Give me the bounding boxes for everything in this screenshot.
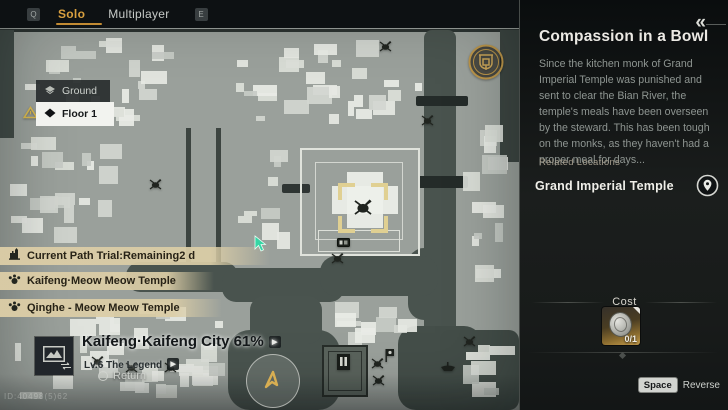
map-building	[129, 60, 140, 77]
back-circle-icon	[98, 371, 108, 381]
sign-icon[interactable]	[337, 238, 350, 247]
quest-detail-panel: « Compassion in a Bowl Since the kitchen…	[519, 0, 728, 410]
player-arrow-icon	[261, 368, 285, 392]
map-building	[64, 205, 74, 223]
map-building	[82, 153, 91, 166]
tower-icon	[8, 247, 21, 265]
map-building	[76, 51, 96, 59]
map-pin-button[interactable]	[696, 174, 719, 197]
gate-icon[interactable]	[336, 353, 351, 371]
spider-icon[interactable]	[462, 335, 477, 348]
quest-title: Compassion in a Bowl	[539, 28, 708, 46]
map-building	[10, 184, 27, 196]
return-button[interactable]: Return	[98, 370, 146, 382]
player-position-marker	[246, 354, 300, 408]
key-hint-q: Q	[27, 8, 40, 21]
spider-icon[interactable]	[330, 252, 345, 265]
map-building	[352, 68, 367, 79]
world-map[interactable]: Q Solo Multiplayer E Ground Floor 1 Curr…	[0, 0, 519, 410]
map-building	[376, 317, 396, 332]
map-building	[270, 150, 288, 162]
paw-icon	[8, 299, 21, 317]
related-locations-label: Related Locations	[539, 157, 620, 168]
map-building	[209, 363, 225, 376]
map-building	[237, 60, 248, 67]
tracked-quest-qinghe-temple[interactable]: Qinghe - Meow Meow Temple	[0, 299, 222, 317]
map-building	[361, 322, 376, 335]
map-building	[261, 208, 280, 219]
map-building	[55, 193, 75, 205]
map-building	[238, 216, 252, 223]
map-water-shape	[186, 128, 191, 266]
item-notch-icon	[633, 307, 640, 314]
space-key-hint[interactable]: Space	[639, 378, 677, 392]
map-building	[31, 156, 38, 166]
banner-icon[interactable]	[384, 348, 396, 362]
map-building	[277, 232, 290, 249]
spider-icon[interactable]	[371, 374, 386, 387]
map-building	[484, 388, 499, 395]
map-building	[156, 385, 177, 398]
selected-location-icon	[352, 198, 374, 222]
region-title[interactable]: Kaifeng·Kaifeng City 61%▶	[82, 333, 281, 350]
map-building	[332, 60, 341, 67]
map-building	[478, 345, 490, 357]
temple-plaza-outline	[318, 230, 400, 252]
map-building	[463, 172, 480, 191]
map-building	[398, 319, 417, 332]
map-building	[284, 48, 299, 58]
floor-button-label: Floor 1	[62, 108, 97, 120]
panel-footer: Space Reverse	[639, 378, 720, 392]
map-selection-marker[interactable]	[338, 183, 388, 233]
tab-multiplayer[interactable]: Multiplayer	[108, 7, 169, 21]
map-building	[475, 265, 494, 282]
map-building	[79, 198, 90, 205]
map-building	[98, 200, 112, 217]
map-building	[314, 44, 337, 55]
map-building	[42, 152, 63, 168]
active-tab-underline	[56, 23, 102, 25]
map-building	[356, 109, 372, 119]
map-building	[329, 86, 340, 98]
map-building	[61, 46, 76, 59]
tracked-quest-path-trial[interactable]: Current Path Trial:Remaining2 d	[0, 247, 270, 265]
tracked-quest-kaifeng-temple[interactable]: Kaifeng·Meow Meow Temple	[0, 272, 214, 290]
map-building	[329, 114, 339, 124]
spider-icon[interactable]	[420, 114, 435, 127]
related-location-name[interactable]: Grand Imperial Temple	[535, 179, 674, 193]
map-building	[472, 202, 496, 213]
map-building	[122, 89, 129, 103]
mouse-cursor-icon	[254, 235, 268, 258]
layers-icon	[44, 85, 56, 98]
map-building	[141, 71, 167, 84]
map-building	[40, 196, 58, 213]
floor-button-floor1[interactable]: Floor 1	[36, 102, 114, 126]
map-building	[236, 83, 244, 92]
map-building	[471, 361, 496, 375]
floor-button-label: Ground	[62, 85, 97, 97]
map-building	[379, 307, 397, 318]
mode-tab-bar: Q Solo Multiplayer E	[0, 0, 519, 28]
map-building	[100, 144, 122, 159]
map-building	[306, 72, 325, 84]
map-building	[356, 40, 379, 57]
map-building	[99, 41, 122, 47]
quest-label: Kaifeng·Meow Meow Temple	[27, 275, 176, 287]
diamond-icon	[44, 108, 56, 121]
map-building	[215, 321, 223, 328]
map-water-shape	[216, 128, 221, 266]
map-building	[11, 216, 27, 223]
map-building	[335, 313, 356, 327]
floor-button-ground[interactable]: Ground	[36, 80, 110, 102]
map-building	[31, 137, 56, 150]
key-hint-e: E	[195, 8, 208, 21]
map-water-shape	[0, 30, 14, 138]
map-building	[152, 52, 174, 59]
quest-description: Since the kitchen monk of Grand Imperial…	[539, 56, 713, 168]
map-building	[54, 227, 77, 243]
map-water-shape	[418, 176, 468, 188]
id-watermark: ID:40498(5)62	[4, 392, 68, 401]
swap-arrows-icon	[60, 357, 72, 375]
boat-icon[interactable]	[440, 361, 456, 373]
cost-count: 0/1	[624, 334, 637, 344]
map-building	[256, 116, 265, 121]
reverse-action-label: Reverse	[683, 380, 720, 391]
map-building	[46, 60, 69, 72]
map-building	[139, 89, 157, 100]
quest-label: Current Path Trial:Remaining2 d	[27, 250, 195, 262]
map-water-shape	[416, 96, 468, 106]
return-label: Return	[113, 370, 146, 382]
chevron-right-icon: ▶	[269, 336, 281, 348]
map-building	[495, 223, 503, 242]
map-building	[53, 373, 73, 389]
map-building	[369, 95, 386, 110]
map-building	[135, 383, 149, 393]
cost-item-slot[interactable]: 0/1	[602, 307, 640, 345]
map-building	[286, 60, 304, 68]
chevron-right-icon: ▶	[167, 358, 179, 370]
map-building	[99, 166, 118, 184]
emblem-icon[interactable]	[468, 44, 504, 80]
map-building	[354, 95, 363, 107]
spider-icon[interactable]	[370, 357, 385, 370]
map-building	[388, 90, 401, 101]
tab-solo[interactable]: Solo	[58, 7, 85, 21]
spider-icon[interactable]	[378, 40, 393, 53]
paw-icon	[8, 272, 21, 290]
panel-divider	[528, 352, 718, 353]
collapse-line	[706, 24, 726, 25]
map-building	[268, 177, 278, 186]
map-building	[284, 100, 309, 114]
map-building	[485, 125, 503, 142]
spider-icon[interactable]	[148, 178, 163, 191]
map-building	[244, 91, 257, 96]
map-building	[15, 343, 21, 361]
region-switch-button[interactable]	[35, 337, 73, 375]
map-building	[482, 155, 507, 174]
quest-label: Qinghe - Meow Meow Temple	[27, 302, 180, 314]
location-pin-icon	[696, 174, 719, 197]
map-building	[489, 346, 515, 355]
map-building	[474, 233, 482, 239]
game-map-screen: Q Solo Multiplayer E Ground Floor 1 Curr…	[0, 0, 728, 410]
map-building	[244, 211, 257, 216]
map-building	[415, 83, 422, 91]
map-building	[384, 80, 399, 87]
